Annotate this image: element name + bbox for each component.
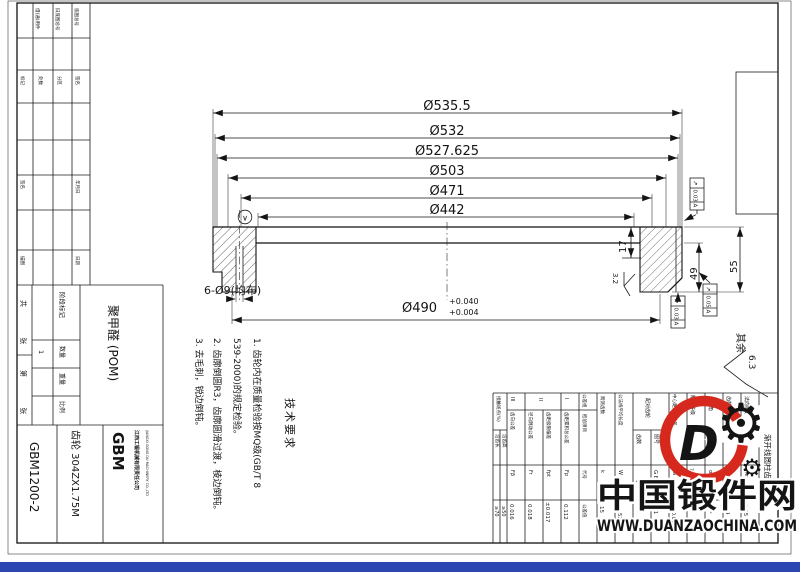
tech-req-title: 技术要求 [283, 398, 296, 450]
cell-label: 配对齿轮 [644, 398, 651, 418]
watermark-title: 中国锻件网 [597, 476, 797, 515]
cell-sym: Fp [563, 470, 569, 476]
cell-label: 沿齿高 [501, 434, 508, 448]
bottom-bar [0, 562, 800, 572]
roughness-local-value: 3.2 [611, 273, 619, 284]
tech-req-line: 1. 齿轮内在质量检验按MQ级(GB/T 8 [251, 338, 263, 488]
runout-icon: ↗ [692, 181, 699, 186]
tolerance-value: 0.03 [673, 308, 679, 321]
company-logo-text: GBM [109, 432, 127, 471]
cell-value: 0.112 [562, 504, 568, 520]
cell-label: 齿距累积总公差 [563, 412, 570, 444]
grid-label: 处数 [37, 76, 44, 85]
dim-bore: Ø490 [402, 301, 437, 316]
grid-label: 日期 [74, 256, 80, 265]
revision-grid: 借(通)用件 旧底图总号 底图总号 标记 处数 分区 签名 签名 年月日 描图 … [17, 3, 90, 285]
grid-label: 底图总号 [73, 8, 80, 26]
tolerance-datum: A [705, 310, 711, 314]
tolerance-datum: A [673, 322, 679, 326]
drawing-sheet: 借(通)用件 旧底图总号 底图总号 标记 处数 分区 签名 签名 年月日 描图 … [0, 0, 800, 572]
cell-label: 跨测齿数 [599, 396, 606, 414]
holes-note: 6-Ø9(均布) [204, 284, 261, 297]
datum-balloon-glyph: ∨ [242, 214, 248, 223]
company-name-en: JIANGXI GONG DU MACHINERY CO.,LTD [145, 429, 149, 496]
cell-label: 公差值 [581, 504, 588, 518]
material-value: 聚甲醛 (POM) [106, 305, 121, 381]
cell-label: 图号 [653, 434, 659, 444]
cell-label: 齿距极限偏差 [545, 412, 552, 439]
cell-value: ≥50 [500, 506, 506, 517]
technical-requirements: 技术要求 1. 齿轮内在质量检验按MQ级(GB/T 8 539-2000)的规定… [193, 338, 296, 514]
qty-value: 1 [37, 350, 45, 354]
dim-diameter-5: Ø471 [429, 184, 464, 199]
qty-label: 数量 [58, 346, 66, 358]
logo-letter: D [679, 416, 719, 472]
grid-label: 借(通)用件 [34, 8, 41, 30]
cell-mark: II [537, 398, 543, 401]
dim-rim-width: 49 [689, 267, 700, 280]
part-section-view [213, 210, 682, 302]
dim-diameter-3: Ø527.625 [415, 144, 479, 159]
cell-value: ±0.017 [544, 502, 550, 523]
engineering-drawing: 借(通)用件 旧底图总号 底图总号 标记 处数 分区 签名 签名 年月日 描图 … [0, 0, 800, 572]
runout-icon: ↗ [673, 299, 680, 304]
stage-mark-label: 阶段标记 [58, 292, 67, 319]
tech-req-line: 539-2000)的规定检验。 [231, 338, 243, 439]
tech-req-line: 3. 去毛刺，锐边倒钝。 [193, 338, 205, 430]
grid-label: 旧底图总号 [54, 8, 61, 31]
watermark-logo: D ⚙ ⚙ [665, 392, 765, 482]
tolerance-value: 0.03 [692, 190, 698, 203]
cell-mark: III [509, 397, 515, 401]
cell-sym: fpt [545, 470, 551, 477]
grid-label: 分区 [56, 76, 63, 85]
weight-label: 重量 [58, 373, 66, 385]
dim-diameter-6: Ø442 [429, 203, 464, 218]
title-block: 共 张 第 张 阶段标记 1 数量 重量 比例 聚甲醛 (POM) GBM120… [17, 285, 163, 543]
cell-label: 径向跳动公差 [527, 412, 534, 439]
sheet-no-label: 第 张 [19, 370, 28, 428]
watermark-url: WWW.DUANZAOCHINA.COM [597, 516, 797, 535]
roughness-general-value: 6.3 [746, 355, 756, 369]
dim-diameter-4: Ø503 [429, 164, 464, 179]
cell-label: 齿向公差 [509, 412, 516, 430]
dim-bore-tol-lower: +0.004 [449, 308, 479, 317]
dim-total-width: 55 [729, 260, 740, 273]
cell-sym: k [599, 470, 605, 473]
cell-value: 0.018 [526, 504, 532, 520]
grid-label: 签名 [19, 180, 26, 189]
cell-value: 0.016 [508, 504, 514, 520]
tolerance-value: 0.05 [705, 296, 711, 309]
cell-label: 公差组 [581, 394, 588, 408]
cell-label: 检验项目 [581, 414, 588, 432]
cell-label: 接触斑点(%) [495, 396, 502, 422]
dim-bore-tol-upper: +0.040 [449, 297, 479, 306]
gear-icon: ⚙ [717, 392, 765, 455]
roughness-general-label: 其余 [734, 333, 747, 353]
cell-sym: Fβ [509, 470, 515, 476]
diameter-dimensions: Ø535.5 Ø532 Ø527.625 Ø503 Ø471 Ø442 ∨ [213, 99, 682, 227]
roughness-marks: 3.2 其余 6.3 [611, 272, 768, 397]
cell-label: 沿齿长 [494, 434, 501, 448]
grid-label: 年月日 [74, 180, 81, 194]
company-name-cn: 江西工锻机械有限责任公司 [133, 430, 140, 490]
part-name: 齿轮 304ZX1.75M [69, 430, 82, 517]
cell-sym: Fr [527, 470, 533, 476]
cell-value: ≥70 [493, 506, 499, 517]
dim-web-thickness: 17 [618, 240, 629, 253]
dim-diameter-2: Ø532 [429, 124, 464, 139]
cell-label: 代号 [581, 470, 588, 479]
tech-req-line: 2. 齿廓倒圆R3，齿廓圆滑过渡，棱边倒钝。 [211, 338, 223, 514]
sheets-total-label: 共 张 [19, 300, 28, 358]
scale-label: 比例 [58, 401, 66, 413]
cell-label: 公法线平均长度 [617, 394, 624, 426]
drawing-number: GBM1200-2 [27, 442, 41, 512]
grid-label: 描图 [19, 256, 26, 265]
grid-label: 签名 [74, 76, 81, 85]
cell-sym: W [617, 470, 623, 475]
cell-mark: I [563, 398, 569, 399]
tolerance-datum: A [692, 204, 698, 208]
cell-label: 齿数 [635, 434, 642, 444]
runout-icon: ↗ [705, 287, 712, 292]
bore-dimension: Ø490 +0.040 +0.004 6-Ø9(均布) [204, 284, 660, 324]
dim-diameter-1: Ø535.5 [423, 99, 470, 114]
grid-label: 标记 [19, 76, 26, 85]
